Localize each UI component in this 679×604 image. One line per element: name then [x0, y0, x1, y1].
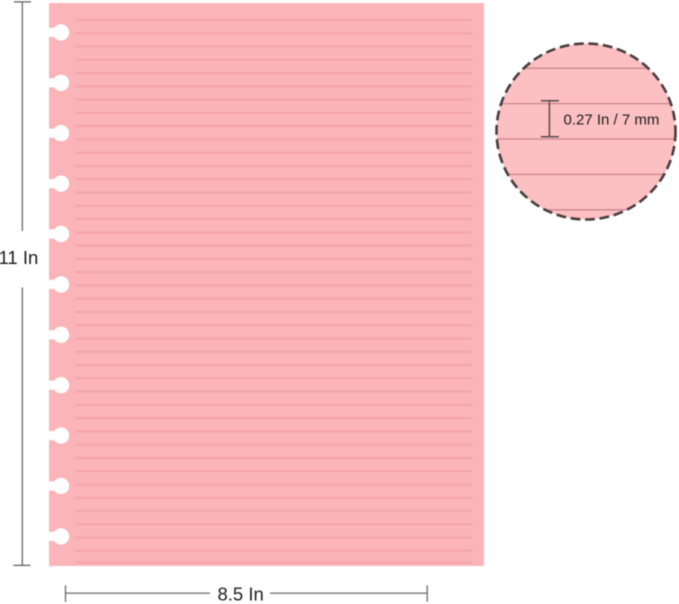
svg-text:11 In: 11 In: [0, 247, 38, 268]
svg-text:8.5 In: 8.5 In: [218, 584, 264, 604]
svg-text:0.27 In / 7 mm: 0.27 In / 7 mm: [564, 112, 660, 129]
